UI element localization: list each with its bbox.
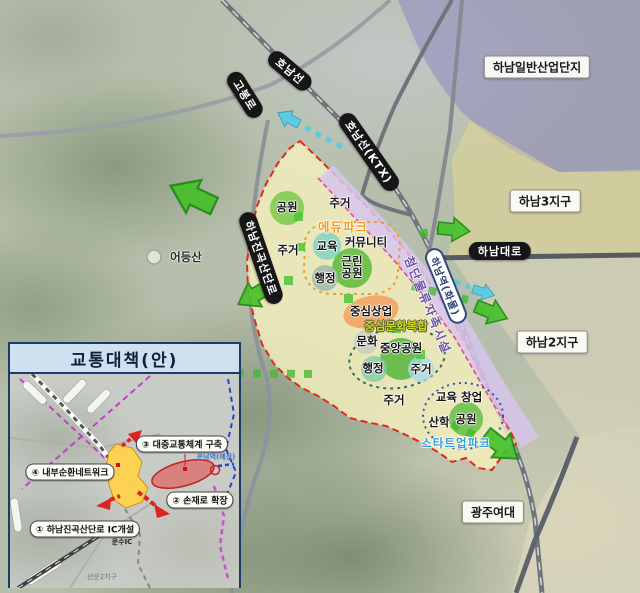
label-hanam3: 하남3지구 bbox=[510, 190, 581, 213]
zone-residential-south: 주거 bbox=[383, 392, 404, 408]
zone-culture: 문화 bbox=[356, 333, 377, 349]
industrial-complex-area bbox=[398, 0, 640, 172]
inset-map: ③ 대중교통체계 구축 ④ 내부순환네트워크 ② 손재로 확장 ① 하남진곡산단… bbox=[10, 374, 239, 588]
zone-central-culture: 중심문화복합 bbox=[364, 318, 427, 334]
eodeungsan-marker bbox=[147, 250, 161, 264]
label-industrial-complex: 하남일반산업단지 bbox=[484, 56, 590, 79]
zone-residential-top: 주거 bbox=[329, 195, 350, 211]
zone-edupark: 에듀파크 bbox=[318, 217, 368, 236]
inset-svg bbox=[10, 374, 239, 588]
gobong-ro-road bbox=[0, 0, 390, 136]
zone-education: 교육 bbox=[316, 238, 337, 254]
planning-map: 하남일반산업단지 하남3지구 하남2지구 광주여대 호남선 고봉로 호남선(KT… bbox=[0, 0, 640, 593]
label-gwangju-univ: 광주여대 bbox=[462, 501, 524, 524]
zone-neighborhood-park: 근린공원 bbox=[339, 255, 366, 279]
cyan-arrow-north bbox=[274, 105, 304, 132]
inset-ic-label: 운수IC bbox=[112, 537, 133, 547]
zone-community: 커뮤니티 bbox=[345, 234, 387, 250]
zone-central-park: 중앙공원 bbox=[380, 340, 422, 356]
pill-hanam-daero: 하남대로 bbox=[469, 242, 531, 260]
inset-item-3: ③ 대중교통체계 구축 bbox=[136, 436, 228, 453]
zone-residential-mid: 주거 bbox=[410, 361, 431, 377]
inset-blue-transit-spur bbox=[218, 464, 234, 466]
inset-road-pills bbox=[10, 378, 112, 587]
inset-district-label: 선운2지구 bbox=[87, 572, 117, 582]
zone-residential-left: 주거 bbox=[277, 242, 298, 258]
label-hanam2: 하남2지구 bbox=[517, 331, 588, 354]
inset-station-label: 운남역(예정) bbox=[197, 452, 236, 462]
arrow-northwest bbox=[163, 169, 222, 222]
zone-park-nw: 공원 bbox=[276, 199, 297, 215]
inset-item-1: ① 하남진곡산단로 IC개설 bbox=[30, 521, 140, 538]
inset-item-4: ④ 내부순환네트워크 bbox=[26, 464, 115, 481]
zone-admin-2: 행정 bbox=[362, 360, 383, 376]
zone-startup-park: 스타트업파크 bbox=[421, 435, 490, 451]
inset-item-2: ② 손재로 확장 bbox=[166, 492, 233, 509]
zone-admin-1: 행정 bbox=[314, 270, 335, 286]
hanam-daero-road bbox=[428, 255, 640, 258]
traffic-plan-inset: 교통대책(안) bbox=[8, 342, 241, 588]
zone-industry-academia: 산학 bbox=[428, 414, 449, 430]
zone-edu-startup: 교육 창업 bbox=[436, 389, 482, 405]
zone-central-commercial: 중심상업 bbox=[350, 303, 392, 319]
label-eodeungsan: 어등산 bbox=[170, 249, 202, 265]
zone-park-se: 공원 bbox=[455, 411, 476, 427]
inset-title: 교통대책(안) bbox=[10, 344, 239, 374]
cyan-trail-north bbox=[303, 126, 342, 147]
